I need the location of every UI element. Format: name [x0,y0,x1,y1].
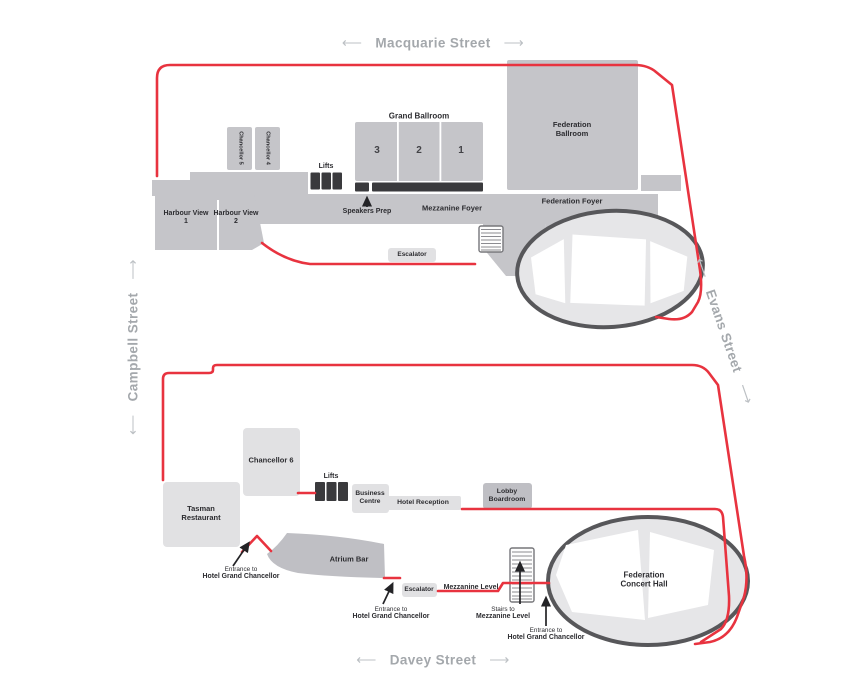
entrance-2-line2: Hotel Grand Chancellor [353,613,430,620]
chancellor-6-label: Chancellor 6 [246,457,296,466]
route-upper-interior [262,243,475,264]
escalator-lower-label: Escalator [404,586,433,594]
ballroom-stage-bar [372,183,483,192]
lifts-upper-label: Lifts [319,163,334,171]
ballroom-section-3: 3 [374,145,380,157]
route-entrance-chevron [242,536,271,552]
speakers-prep-bar [355,183,369,192]
stairs-note-line2: Mezzanine Level [476,613,530,620]
mezzanine-foyer-label: Mezzanine Foyer [422,205,482,214]
entrance-2-arrow [383,585,392,604]
lobby-boardroom-label: Lobby Boardroom [482,488,532,504]
stairs-upper-icon [479,226,503,252]
arrow-left-icon: ⟵ [342,35,362,52]
stairs-note-line1: Stairs to [476,606,530,613]
tasman-restaurant-label: Tasman Restaurant [172,505,230,523]
federation-ballroom-label: Federation Ballroom [543,121,601,139]
entrance-1-arrow [233,544,248,566]
federation-foyer-label: Federation Foyer [542,198,603,207]
chancellor-4-label: Chancellor 4 [264,128,271,168]
harbour-view-2-label: Harbour View 2 [213,210,259,227]
street-davey: ⟵ Davey Street ⟶ [356,652,510,669]
entrance-1-line2: Hotel Grand Chancellor [203,573,280,580]
street-campbell-label: Campbell Street [126,293,141,402]
entrance-3-line1: Entrance to [508,627,585,634]
entrance-3-line2: Hotel Grand Chancellor [508,634,585,641]
entrance-2-note: Entrance to Hotel Grand Chancellor [353,606,430,620]
entrance-2-line1: Entrance to [353,606,430,613]
entrance-3-note: Entrance to Hotel Grand Chancellor [508,627,585,641]
arrow-right-icon: ⟶ [504,35,524,52]
ballroom-divider-2 [440,122,442,181]
business-centre-label: Business Centre [348,490,392,506]
street-davey-label: Davey Street [390,653,477,668]
lifts-upper-icon [311,173,343,190]
floorplan-map: ⟵ Macquarie Street ⟶ ⟵ Campbell Street ⟶… [0,0,860,700]
speakers-prep-label: Speakers Prep [343,208,392,216]
federation-side-block [641,175,681,191]
ballroom-section-1: 1 [458,145,464,157]
street-campbell: ⟵ Campbell Street ⟶ [125,259,142,435]
arrow-right-icon: ⟶ [489,652,509,669]
harbour-view-1-label: Harbour View 1 [163,210,209,227]
arrow-left-icon: ⟵ [125,414,142,434]
arrow-right-icon: ⟶ [125,259,142,279]
federation-concert-hall-label: Federation Concert Hall [611,571,677,590]
escalator-upper-label: Escalator [397,251,426,259]
lifts-lower-icon [315,482,348,501]
grand-ballroom-title: Grand Ballroom [389,111,449,120]
arrow-left-icon: ⟵ [356,652,376,669]
atrium-bar-label: Atrium Bar [329,556,369,565]
entrance-1-line1: Entrance to [203,566,280,573]
hotel-reception-label: Hotel Reception [397,499,449,507]
street-macquarie-label: Macquarie Street [375,36,490,51]
entrance-1-note: Entrance to Hotel Grand Chancellor [203,566,280,580]
stairs-note: Stairs to Mezzanine Level [476,606,530,620]
ballroom-section-2: 2 [416,145,422,157]
stairs-lower-icon [510,548,534,602]
chancellor-5-label: Chancellor 5 [237,128,244,168]
street-macquarie: ⟵ Macquarie Street ⟶ [342,35,524,52]
ballroom-divider-1 [397,122,399,181]
mezzanine-level-label: Mezzanine Level [444,584,499,592]
lifts-lower-label: Lifts [324,473,339,481]
